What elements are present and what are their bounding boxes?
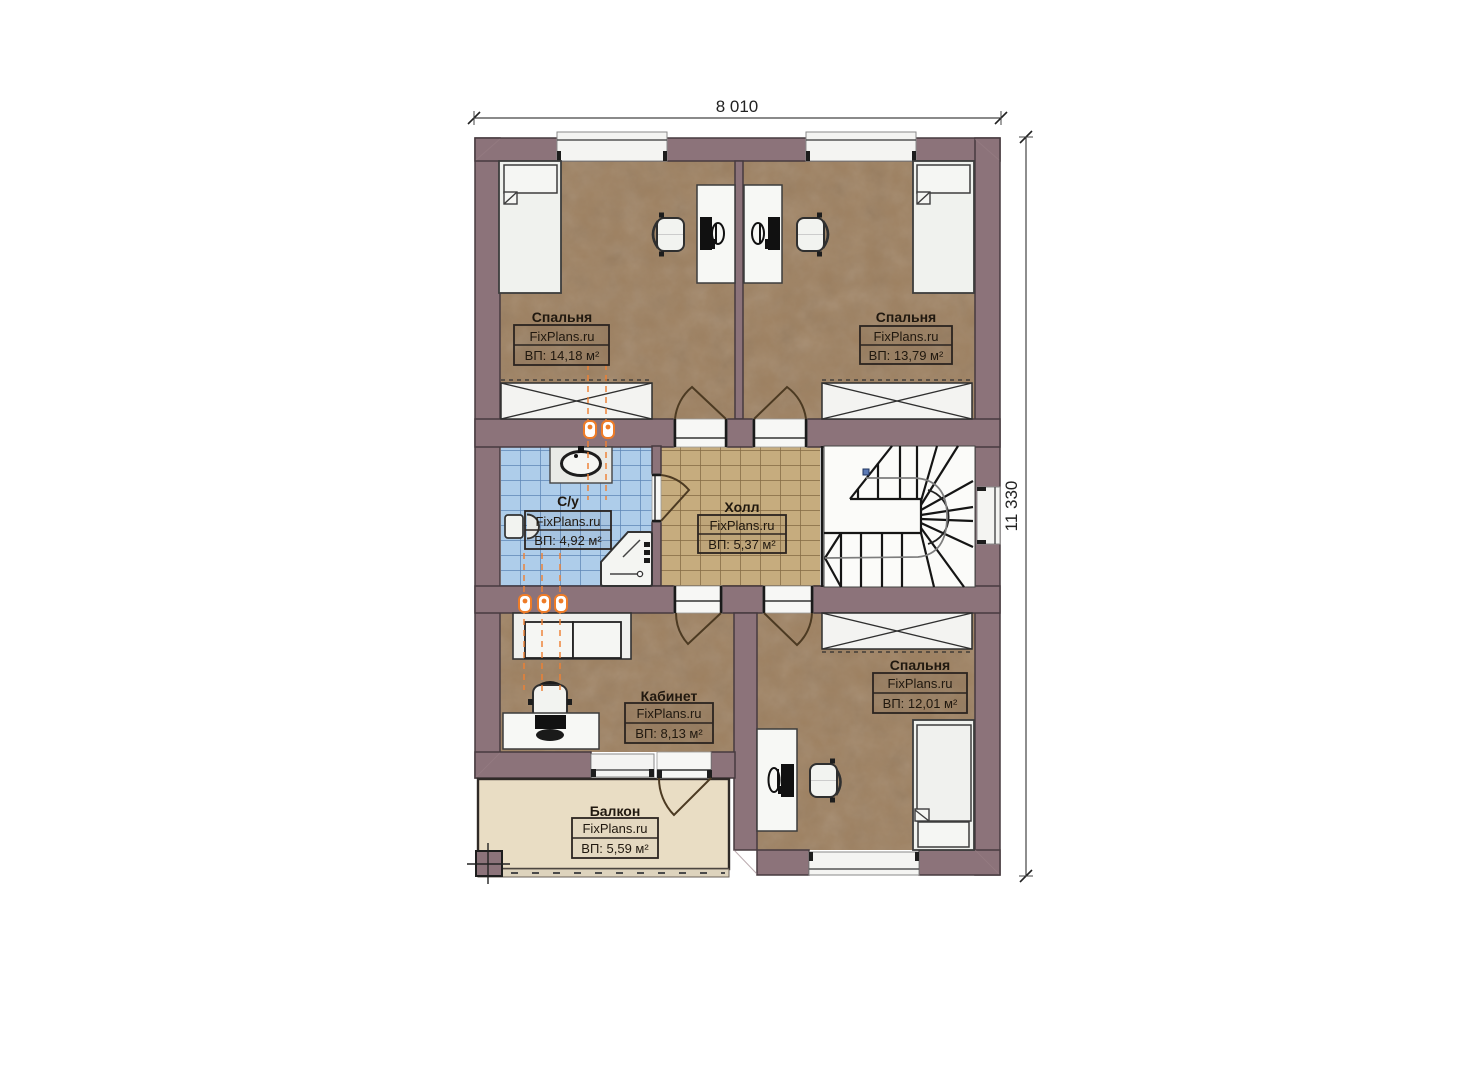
svg-text:Кабинет: Кабинет [641, 688, 698, 704]
svg-text:FixPlans.ru: FixPlans.ru [636, 706, 701, 721]
svg-text:Балкон: Балкон [590, 803, 641, 819]
svg-text:Спальня: Спальня [532, 309, 592, 325]
svg-text:FixPlans.ru: FixPlans.ru [582, 821, 647, 836]
svg-text:С/у: С/у [557, 493, 579, 509]
svg-text:Спальня: Спальня [876, 309, 936, 325]
svg-text:ВП: 14,18 м²: ВП: 14,18 м² [525, 348, 600, 363]
svg-text:8 010: 8 010 [716, 97, 759, 116]
svg-text:Холл: Холл [724, 499, 759, 515]
svg-text:ВП: 8,13 м²: ВП: 8,13 м² [635, 726, 703, 741]
svg-text:Спальня: Спальня [890, 657, 950, 673]
svg-text:FixPlans.ru: FixPlans.ru [709, 518, 774, 533]
svg-text:FixPlans.ru: FixPlans.ru [873, 329, 938, 344]
svg-text:FixPlans.ru: FixPlans.ru [887, 676, 952, 691]
svg-text:ВП: 13,79 м²: ВП: 13,79 м² [869, 348, 944, 363]
svg-text:ВП: 12,01 м²: ВП: 12,01 м² [883, 696, 958, 711]
svg-text:ВП: 5,37 м²: ВП: 5,37 м² [708, 537, 776, 552]
svg-text:11 330: 11 330 [1002, 481, 1021, 532]
svg-text:ВП: 5,59 м²: ВП: 5,59 м² [581, 841, 649, 856]
svg-text:ВП: 4,92 м²: ВП: 4,92 м² [534, 533, 602, 548]
svg-text:FixPlans.ru: FixPlans.ru [529, 329, 594, 344]
svg-text:FixPlans.ru: FixPlans.ru [535, 514, 600, 529]
